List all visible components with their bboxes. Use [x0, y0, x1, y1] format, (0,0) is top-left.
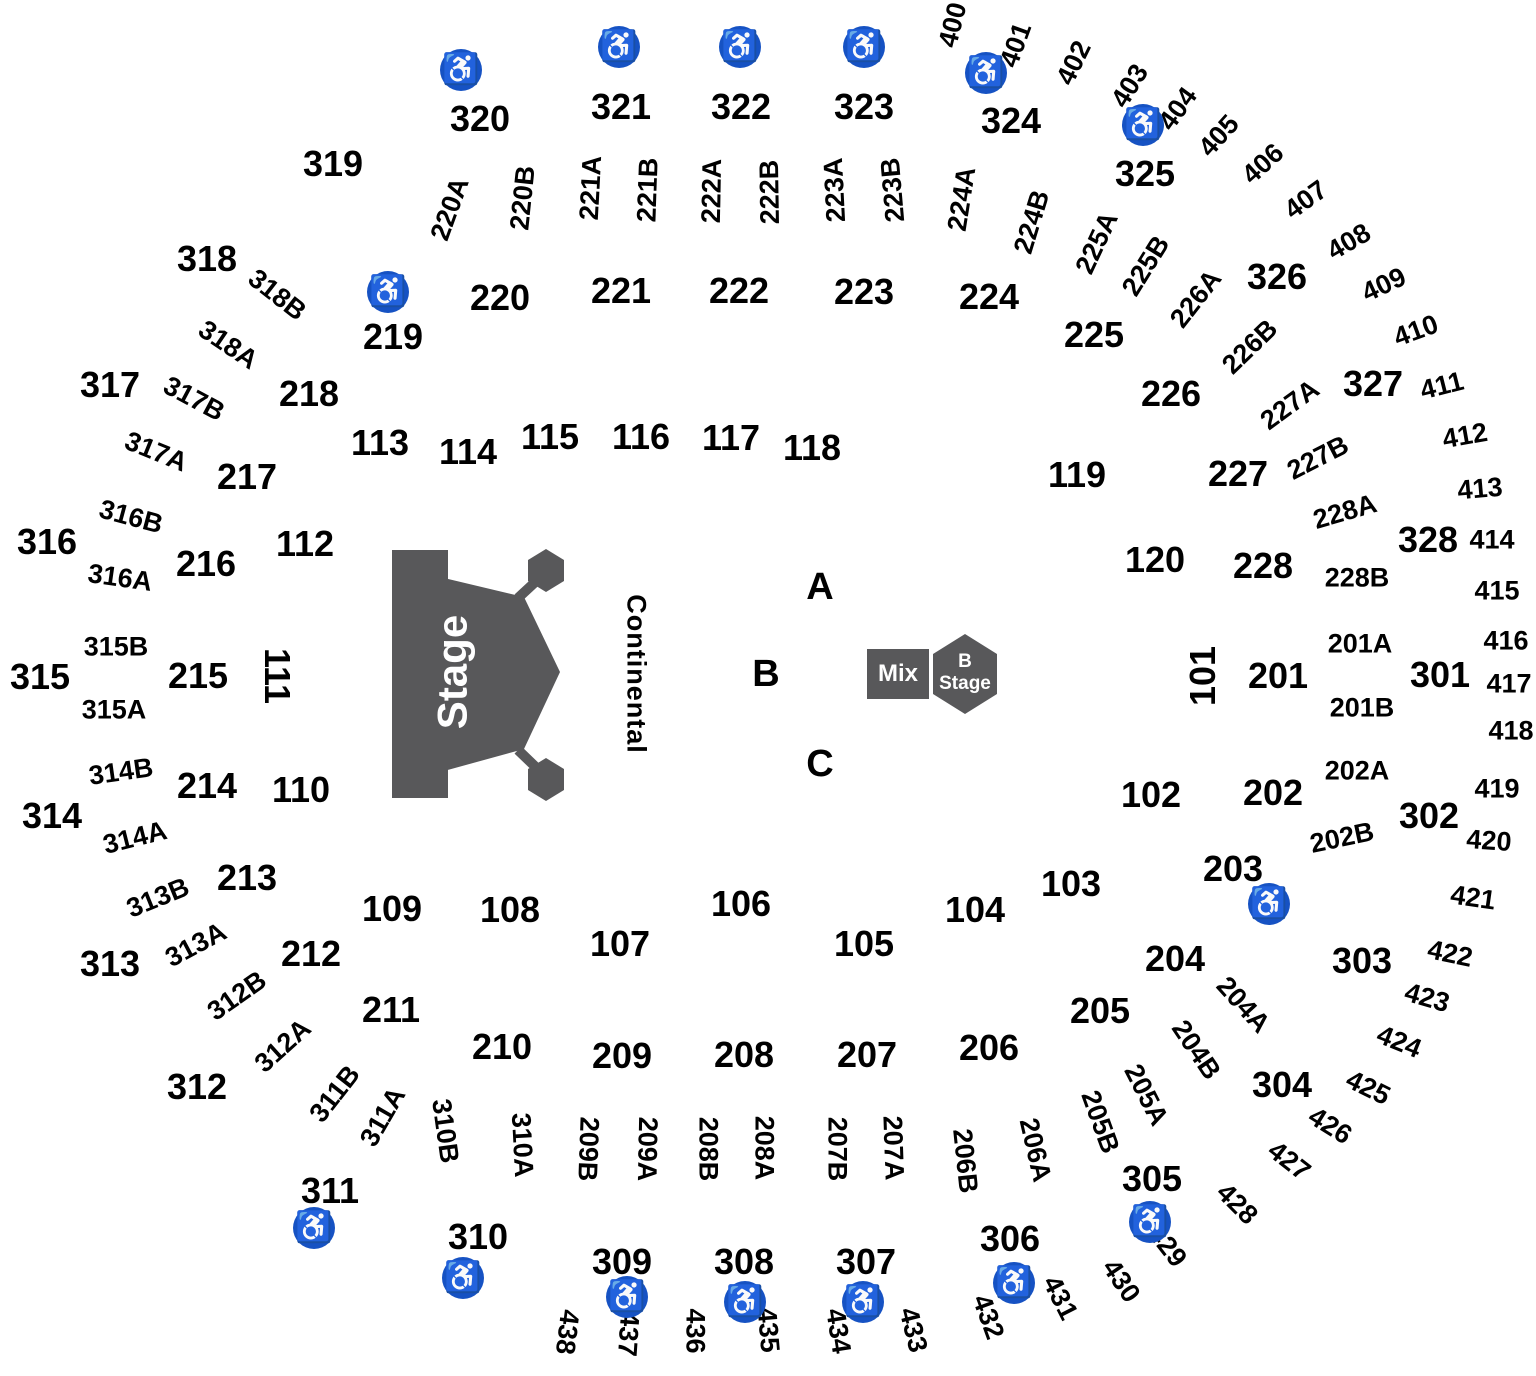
section-label-311A[interactable]: 311A [356, 1083, 411, 1151]
section-label-325[interactable]: 325 [1115, 156, 1175, 192]
floor-row-letter-A[interactable]: A [806, 568, 833, 606]
section-label-120[interactable]: 120 [1125, 542, 1185, 578]
section-label-201B[interactable]: 201B [1330, 695, 1395, 722]
section-label-412[interactable]: 412 [1440, 419, 1489, 453]
section-label-209A[interactable]: 209A [633, 1116, 661, 1181]
section-label-222B[interactable]: 222B [756, 159, 784, 224]
wheelchair-icon[interactable]: ♿ [1248, 883, 1290, 925]
section-label-114[interactable]: 114 [439, 434, 497, 470]
section-label-313B[interactable]: 313B [123, 873, 193, 922]
section-label-220A[interactable]: 220A [426, 174, 473, 244]
stage-shape: Stage [392, 549, 564, 801]
section-label-228A[interactable]: 228A [1310, 490, 1379, 534]
section-label-406[interactable]: 406 [1237, 139, 1289, 189]
section-label-421[interactable]: 421 [1449, 881, 1497, 914]
section-label-225B[interactable]: 225B [1117, 231, 1174, 300]
section-label-304[interactable]: 304 [1252, 1067, 1312, 1103]
section-label-310A[interactable]: 310A [507, 1112, 537, 1178]
section-label-410[interactable]: 410 [1390, 311, 1442, 352]
wheelchair-icon[interactable]: ♿ [1129, 1201, 1171, 1243]
section-label-321[interactable]: 321 [591, 89, 651, 125]
wheelchair-icon[interactable]: ♿ [843, 26, 885, 68]
section-label-116[interactable]: 116 [612, 419, 670, 455]
seating-chart: Stage Mix B Stage Continental 1011021031… [0, 0, 1536, 1376]
floor-row-letter-B[interactable]: B [752, 655, 779, 693]
section-label-414[interactable]: 414 [1469, 527, 1514, 554]
section-label-225[interactable]: 225 [1064, 317, 1124, 353]
section-label-313[interactable]: 313 [80, 946, 140, 982]
section-label-438[interactable]: 438 [551, 1308, 583, 1356]
section-label-224[interactable]: 224 [959, 279, 1019, 315]
wheelchair-icon[interactable]: ♿ [1122, 104, 1164, 146]
section-label-420[interactable]: 420 [1466, 826, 1513, 856]
section-label-118[interactable]: 118 [783, 430, 841, 466]
section-label-411[interactable]: 411 [1418, 368, 1467, 405]
section-label-119[interactable]: 119 [1048, 457, 1106, 493]
section-label-115[interactable]: 115 [521, 419, 579, 455]
section-label-221B[interactable]: 221B [633, 157, 662, 222]
section-label-316A[interactable]: 316A [86, 560, 154, 596]
section-label-416[interactable]: 416 [1483, 628, 1528, 655]
section-label-413[interactable]: 413 [1456, 474, 1503, 505]
section-label-415[interactable]: 415 [1474, 578, 1519, 605]
section-label-436[interactable]: 436 [682, 1308, 709, 1353]
stage-apron [444, 578, 560, 771]
section-label-224A[interactable]: 224A [944, 165, 981, 233]
section-label-225A[interactable]: 225A [1071, 208, 1123, 278]
section-label-311B[interactable]: 311B [305, 1061, 365, 1127]
section-label-428[interactable]: 428 [1212, 1179, 1263, 1230]
section-label-103[interactable]: 103 [1041, 866, 1101, 902]
section-label-202[interactable]: 202 [1243, 775, 1303, 811]
section-label-305[interactable]: 305 [1122, 1161, 1182, 1197]
section-label-208[interactable]: 208 [714, 1037, 774, 1073]
section-label-222A[interactable]: 222A [698, 158, 726, 223]
stage-knob-top [528, 549, 564, 592]
floor-row-letter-C[interactable]: C [806, 745, 833, 783]
section-label-111[interactable]: 111 [259, 648, 295, 704]
section-label-110[interactable]: 110 [272, 772, 330, 808]
section-label-310B[interactable]: 310B [427, 1097, 463, 1165]
section-label-424[interactable]: 424 [1373, 1021, 1425, 1063]
b-stage-label-line1: B [958, 651, 972, 672]
section-label-409[interactable]: 409 [1358, 263, 1410, 307]
section-label-204[interactable]: 204 [1145, 941, 1205, 977]
section-label-226A[interactable]: 226A [1165, 265, 1226, 332]
section-label-202A[interactable]: 202A [1325, 758, 1390, 785]
section-label-101[interactable]: 101 [1185, 646, 1221, 706]
section-label-228B[interactable]: 228B [1325, 565, 1390, 592]
wheelchair-icon[interactable]: ♿ [965, 52, 1007, 94]
section-label-317[interactable]: 317 [80, 367, 140, 403]
section-label-227B[interactable]: 227B [1283, 431, 1353, 484]
section-label-207A[interactable]: 207A [878, 1115, 907, 1180]
section-label-206[interactable]: 206 [959, 1030, 1019, 1066]
section-label-223A[interactable]: 223A [820, 157, 850, 223]
section-label-408[interactable]: 408 [1323, 219, 1376, 265]
section-label-322[interactable]: 322 [711, 89, 771, 125]
wheelchair-icon[interactable]: ♿ [442, 1257, 484, 1299]
section-label-405[interactable]: 405 [1194, 110, 1244, 162]
section-label-104[interactable]: 104 [945, 892, 1005, 928]
section-label-303[interactable]: 303 [1332, 943, 1392, 979]
section-label-105[interactable]: 105 [834, 926, 894, 962]
section-label-222[interactable]: 222 [709, 273, 769, 309]
b-stage-label-line2: Stage [939, 673, 991, 694]
section-label-112[interactable]: 112 [276, 526, 334, 562]
section-label-302[interactable]: 302 [1399, 798, 1459, 834]
section-label-327[interactable]: 327 [1343, 366, 1403, 402]
section-label-218[interactable]: 218 [279, 376, 339, 412]
section-label-215[interactable]: 215 [168, 658, 228, 694]
section-label-223[interactable]: 223 [834, 274, 894, 310]
section-label-306[interactable]: 306 [980, 1221, 1040, 1257]
section-label-221A[interactable]: 221A [576, 155, 606, 221]
section-label-400[interactable]: 400 [934, 0, 971, 50]
section-label-205B[interactable]: 205B [1076, 1087, 1123, 1157]
section-label-201[interactable]: 201 [1248, 658, 1308, 694]
section-label-106[interactable]: 106 [711, 886, 771, 922]
section-label-425[interactable]: 425 [1342, 1066, 1394, 1110]
section-label-310[interactable]: 310 [448, 1219, 508, 1255]
section-label-301[interactable]: 301 [1410, 657, 1470, 693]
section-label-210[interactable]: 210 [472, 1029, 532, 1065]
section-label-328[interactable]: 328 [1398, 522, 1458, 558]
section-label-226[interactable]: 226 [1141, 376, 1201, 412]
section-label-422[interactable]: 422 [1425, 936, 1475, 972]
section-label-307[interactable]: 307 [836, 1244, 896, 1280]
section-label-205A[interactable]: 205A [1119, 1060, 1172, 1130]
section-label-205[interactable]: 205 [1070, 993, 1130, 1029]
section-label-318B[interactable]: 318B [243, 264, 310, 325]
section-label-208A[interactable]: 208A [751, 1116, 778, 1181]
section-label-223B[interactable]: 223B [877, 157, 910, 224]
section-label-323[interactable]: 323 [834, 89, 894, 125]
wheelchair-icon[interactable]: ♿ [606, 1276, 648, 1318]
section-label-423[interactable]: 423 [1402, 979, 1453, 1017]
stage-label: Stage [429, 615, 476, 729]
section-label-326[interactable]: 326 [1247, 259, 1307, 295]
section-label-315[interactable]: 315 [10, 659, 70, 695]
section-label-216[interactable]: 216 [176, 546, 236, 582]
section-label-417[interactable]: 417 [1486, 671, 1531, 698]
section-label-117[interactable]: 117 [702, 420, 760, 456]
section-label-202B[interactable]: 202B [1308, 818, 1377, 858]
section-label-402[interactable]: 402 [1052, 37, 1096, 89]
section-label-227[interactable]: 227 [1208, 456, 1268, 492]
section-label-308[interactable]: 308 [714, 1244, 774, 1280]
section-label-220B[interactable]: 220B [506, 164, 540, 231]
section-label-314A[interactable]: 314A [100, 817, 169, 859]
section-label-109[interactable]: 109 [362, 891, 422, 927]
section-label-431[interactable]: 431 [1038, 1272, 1083, 1324]
section-label-217[interactable]: 217 [217, 459, 277, 495]
section-label-427[interactable]: 427 [1263, 1136, 1315, 1185]
continental-walkway-label: Continental [621, 594, 652, 754]
section-label-204B[interactable]: 204B [1167, 1016, 1225, 1085]
section-label-206B[interactable]: 206B [948, 1127, 982, 1194]
section-label-317A[interactable]: 317A [121, 427, 191, 476]
section-label-203[interactable]: 203 [1203, 851, 1263, 887]
section-label-418[interactable]: 418 [1488, 718, 1533, 745]
section-label-219[interactable]: 219 [363, 319, 423, 355]
wheelchair-icon[interactable]: ♿ [367, 271, 409, 313]
section-label-317B[interactable]: 317B [159, 372, 229, 426]
section-label-315A[interactable]: 315A [82, 697, 147, 724]
section-label-207B[interactable]: 207B [824, 1117, 851, 1182]
section-label-209B[interactable]: 209B [573, 1116, 602, 1181]
section-label-312[interactable]: 312 [167, 1069, 227, 1105]
section-label-315B[interactable]: 315B [84, 634, 149, 661]
section-label-206A[interactable]: 206A [1015, 1116, 1056, 1185]
section-label-319[interactable]: 319 [303, 146, 363, 182]
section-label-320[interactable]: 320 [450, 101, 510, 137]
section-label-213[interactable]: 213 [217, 860, 277, 896]
section-label-212[interactable]: 212 [281, 936, 341, 972]
section-label-102[interactable]: 102 [1121, 777, 1181, 813]
section-label-220[interactable]: 220 [470, 280, 530, 316]
wheelchair-icon[interactable]: ♿ [842, 1281, 884, 1323]
section-label-314[interactable]: 314 [22, 798, 82, 834]
stage-back-wall [392, 550, 448, 798]
section-label-433[interactable]: 433 [894, 1305, 931, 1355]
section-label-318[interactable]: 318 [177, 241, 237, 277]
b-stage-label: B Stage [939, 651, 991, 695]
wheelchair-icon[interactable]: ♿ [719, 26, 761, 68]
wheelchair-icon[interactable]: ♿ [598, 26, 640, 68]
section-label-313A[interactable]: 313A [161, 918, 231, 972]
section-label-314B[interactable]: 314B [87, 754, 155, 790]
section-label-204A[interactable]: 204A [1211, 972, 1274, 1038]
wheelchair-icon[interactable]: ♿ [440, 49, 482, 91]
section-label-228[interactable]: 228 [1233, 548, 1293, 584]
section-label-316B[interactable]: 316B [96, 496, 165, 539]
section-label-224B[interactable]: 224B [1010, 187, 1055, 257]
stage-arm-bottom [518, 750, 545, 776]
section-label-318A[interactable]: 318A [194, 316, 263, 374]
section-label-214[interactable]: 214 [177, 768, 237, 804]
stage-knob-bottom [528, 758, 564, 801]
section-label-221[interactable]: 221 [591, 273, 651, 309]
section-label-226B[interactable]: 226B [1217, 315, 1282, 379]
section-label-419[interactable]: 419 [1474, 776, 1519, 803]
section-label-227A[interactable]: 227A [1256, 375, 1324, 435]
section-label-108[interactable]: 108 [480, 892, 540, 928]
section-label-107[interactable]: 107 [590, 926, 650, 962]
section-label-201A[interactable]: 201A [1328, 631, 1393, 658]
section-label-211[interactable]: 211 [362, 992, 420, 1028]
section-label-208B[interactable]: 208B [695, 1117, 722, 1182]
section-label-207[interactable]: 207 [837, 1037, 897, 1073]
section-label-311[interactable]: 311 [301, 1173, 359, 1209]
section-label-312A[interactable]: 312A [250, 1014, 316, 1077]
section-label-316[interactable]: 316 [17, 524, 77, 560]
section-label-426[interactable]: 426 [1304, 1103, 1357, 1150]
wheelchair-icon[interactable]: ♿ [293, 1207, 335, 1249]
section-label-407[interactable]: 407 [1280, 176, 1332, 224]
section-label-113[interactable]: 113 [351, 425, 409, 461]
wheelchair-icon[interactable]: ♿ [724, 1281, 766, 1323]
section-label-312B[interactable]: 312B [203, 966, 271, 1025]
section-label-209[interactable]: 209 [592, 1038, 652, 1074]
wheelchair-icon[interactable]: ♿ [993, 1262, 1035, 1304]
stage-arm-top [518, 573, 545, 598]
section-label-430[interactable]: 430 [1097, 1255, 1145, 1307]
section-label-324[interactable]: 324 [981, 103, 1041, 139]
mix-booth-label: Mix [878, 660, 918, 688]
section-label-309[interactable]: 309 [592, 1244, 652, 1280]
